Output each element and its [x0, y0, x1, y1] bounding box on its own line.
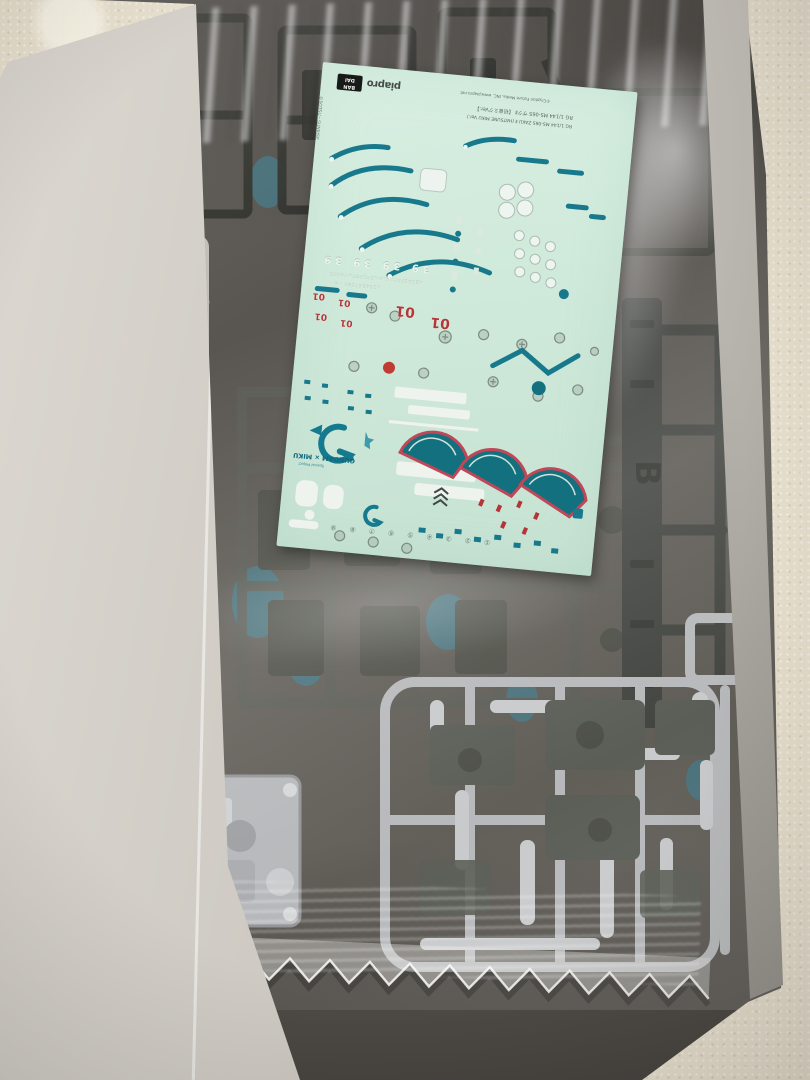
red-circle-decal	[382, 361, 395, 374]
decal-01-marking-large: 01	[395, 302, 416, 320]
water-decal-sheet: ©SOTSU・SUNRISE BAN DAI piapro ©Crypton F…	[276, 62, 637, 576]
small-glyph-column	[450, 216, 484, 295]
decal-01-marking: 01	[312, 290, 325, 301]
gundam-miku-logo-mark	[301, 423, 389, 525]
red-mini-decals	[476, 496, 541, 536]
teal-wave-decal	[490, 348, 578, 399]
teal-circle-decal	[558, 289, 569, 300]
decal-graphics	[276, 62, 637, 576]
decal-01-marking: 01	[338, 297, 351, 308]
decal-01-marking-large: 01	[430, 314, 451, 332]
teal-stripe-decals	[317, 123, 610, 318]
photo-model-kit-box: B	[0, 0, 810, 1080]
white-circle-decals	[491, 180, 566, 289]
teal-tick-decals	[302, 380, 374, 415]
white-square-decal	[419, 168, 447, 192]
decal-01-marking: 01	[340, 317, 353, 328]
decal-01-marking: 01	[314, 310, 327, 321]
